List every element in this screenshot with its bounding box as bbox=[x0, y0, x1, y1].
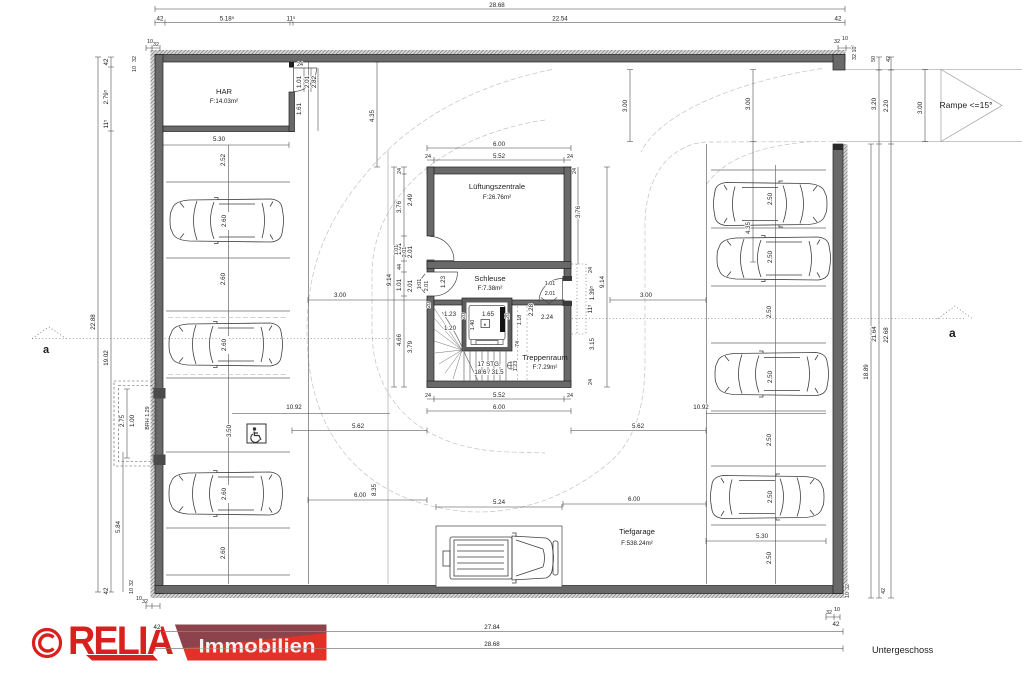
svg-text:11⁵: 11⁵ bbox=[287, 16, 296, 23]
svg-text:1.23: 1.23 bbox=[440, 275, 447, 288]
svg-text:1.65: 1.65 bbox=[482, 311, 495, 318]
svg-text:10: 10 bbox=[132, 66, 138, 72]
svg-text:28.68: 28.68 bbox=[489, 2, 505, 9]
svg-text:1.01: 1.01 bbox=[417, 279, 423, 290]
svg-text:2.01: 2.01 bbox=[407, 245, 414, 258]
svg-text:6.00: 6.00 bbox=[354, 492, 367, 499]
svg-text:Lüftungszentrale: Lüftungszentrale bbox=[469, 182, 525, 191]
svg-text:5.52: 5.52 bbox=[493, 153, 506, 160]
svg-text:11⁵: 11⁵ bbox=[103, 119, 110, 128]
svg-text:24: 24 bbox=[397, 168, 403, 174]
svg-text:10: 10 bbox=[842, 36, 848, 42]
svg-text:Immobilien: Immobilien bbox=[199, 636, 316, 658]
svg-text:22.54: 22.54 bbox=[552, 16, 568, 23]
svg-text:11⁵: 11⁵ bbox=[587, 304, 594, 313]
svg-text:6.00: 6.00 bbox=[493, 141, 506, 148]
svg-text:1.01: 1.01 bbox=[396, 278, 403, 291]
svg-text:HAR: HAR bbox=[216, 87, 233, 96]
svg-text:1.20: 1.20 bbox=[444, 325, 457, 332]
svg-text:2.20: 2.20 bbox=[883, 99, 890, 112]
svg-text:2.28: 2.28 bbox=[528, 303, 535, 316]
svg-text:32: 32 bbox=[845, 584, 851, 590]
svg-text:F:7.29m²: F:7.29m² bbox=[533, 364, 558, 371]
svg-text:10: 10 bbox=[834, 607, 840, 613]
svg-text:2.52: 2.52 bbox=[220, 153, 227, 166]
svg-text:18.89: 18.89 bbox=[863, 364, 870, 380]
svg-text:2.50: 2.50 bbox=[767, 490, 774, 503]
svg-text:3.76: 3.76 bbox=[575, 205, 582, 218]
svg-text:2.01: 2.01 bbox=[545, 291, 556, 297]
svg-text:24: 24 bbox=[572, 168, 578, 174]
svg-text:24: 24 bbox=[297, 62, 303, 68]
svg-text:BRH 1.29: BRH 1.29 bbox=[145, 406, 151, 429]
svg-text:42: 42 bbox=[154, 624, 161, 631]
svg-text:27.84: 27.84 bbox=[484, 624, 500, 631]
svg-text:1.61: 1.61 bbox=[296, 102, 303, 115]
svg-text:5.52: 5.52 bbox=[493, 392, 506, 399]
svg-text:Tiefgarage: Tiefgarage bbox=[619, 527, 655, 536]
svg-text:2.60: 2.60 bbox=[220, 272, 227, 285]
svg-text:2.01: 2.01 bbox=[407, 279, 414, 292]
svg-text:3.00: 3.00 bbox=[745, 97, 752, 110]
svg-text:2.01: 2.01 bbox=[402, 247, 408, 258]
svg-text:24: 24 bbox=[567, 154, 573, 160]
svg-text:8.35: 8.35 bbox=[371, 483, 378, 496]
svg-text:22.68: 22.68 bbox=[883, 327, 890, 343]
svg-text:24: 24 bbox=[425, 154, 431, 160]
svg-text:42: 42 bbox=[157, 16, 164, 23]
svg-text:3.00: 3.00 bbox=[640, 292, 653, 299]
svg-text:6.00: 6.00 bbox=[628, 496, 641, 503]
svg-text:42: 42 bbox=[881, 588, 887, 594]
svg-text:2.50: 2.50 bbox=[766, 551, 773, 564]
svg-text:32: 32 bbox=[142, 599, 148, 605]
svg-text:42: 42 bbox=[103, 58, 110, 65]
svg-text:1.40: 1.40 bbox=[470, 320, 476, 331]
svg-text:3.50: 3.50 bbox=[226, 424, 233, 437]
svg-text:a: a bbox=[43, 344, 50, 356]
svg-text:28.68: 28.68 bbox=[484, 641, 500, 648]
svg-text:2.60: 2.60 bbox=[221, 487, 228, 500]
svg-text:1.23: 1.23 bbox=[444, 311, 457, 318]
svg-text:32: 32 bbox=[826, 610, 832, 616]
svg-text:F:7.38m²: F:7.38m² bbox=[478, 285, 503, 292]
svg-text:2.60: 2.60 bbox=[220, 546, 227, 559]
svg-text:74: 74 bbox=[515, 341, 521, 347]
svg-text:1.01: 1.01 bbox=[545, 281, 556, 287]
svg-text:20: 20 bbox=[426, 302, 432, 308]
svg-text:▲: ▲ bbox=[483, 322, 487, 327]
svg-text:32: 32 bbox=[153, 42, 159, 48]
svg-text:2.60: 2.60 bbox=[221, 338, 228, 351]
svg-text:9.14: 9.14 bbox=[599, 275, 606, 288]
svg-text:Rampe <=15°: Rampe <=15° bbox=[939, 100, 992, 110]
svg-text:5.62: 5.62 bbox=[352, 423, 365, 430]
svg-text:Untergeschoss: Untergeschoss bbox=[872, 645, 934, 655]
svg-text:4.35: 4.35 bbox=[369, 109, 376, 122]
svg-text:4.66: 4.66 bbox=[396, 333, 403, 346]
svg-text:3.20: 3.20 bbox=[871, 97, 878, 110]
svg-text:F:26.76m²: F:26.76m² bbox=[483, 194, 511, 201]
svg-text:42: 42 bbox=[833, 621, 840, 628]
svg-text:5.24: 5.24 bbox=[493, 499, 506, 506]
svg-text:1.01: 1.01 bbox=[296, 75, 303, 88]
svg-text:32: 32 bbox=[132, 56, 138, 62]
svg-text:18.6 / 31.5: 18.6 / 31.5 bbox=[474, 369, 504, 376]
svg-text:1.18: 1.18 bbox=[517, 315, 523, 326]
svg-text:2.50: 2.50 bbox=[767, 250, 774, 263]
svg-text:10: 10 bbox=[129, 588, 135, 594]
svg-text:24: 24 bbox=[588, 267, 594, 273]
svg-text:44: 44 bbox=[397, 264, 403, 270]
svg-text:3.79: 3.79 bbox=[407, 340, 414, 353]
svg-text:19.02: 19.02 bbox=[103, 350, 110, 366]
svg-text:2.82: 2.82 bbox=[311, 75, 318, 88]
svg-text:2.60: 2.60 bbox=[221, 214, 228, 227]
svg-text:5.62: 5.62 bbox=[632, 423, 645, 430]
svg-text:2.75: 2.75 bbox=[119, 414, 126, 427]
svg-text:24: 24 bbox=[588, 379, 594, 385]
svg-text:2.24: 2.24 bbox=[541, 314, 554, 321]
svg-text:5.18⁵: 5.18⁵ bbox=[220, 16, 235, 23]
svg-text:17 STG.: 17 STG. bbox=[477, 361, 500, 368]
svg-text:42: 42 bbox=[835, 16, 842, 23]
svg-text:Schleuse: Schleuse bbox=[474, 274, 505, 283]
svg-text:3.00: 3.00 bbox=[622, 99, 629, 112]
svg-text:2.01: 2.01 bbox=[304, 75, 311, 88]
svg-text:21.64: 21.64 bbox=[871, 326, 878, 342]
svg-text:2.79⁵: 2.79⁵ bbox=[103, 89, 110, 104]
svg-text:32: 32 bbox=[129, 580, 135, 586]
svg-text:32 10: 32 10 bbox=[852, 47, 858, 61]
svg-text:Treppenraum: Treppenraum bbox=[522, 353, 567, 362]
svg-text:5.84: 5.84 bbox=[115, 520, 122, 533]
svg-text:10.92: 10.92 bbox=[693, 404, 709, 411]
svg-text:5.30: 5.30 bbox=[213, 136, 226, 143]
svg-text:2.50: 2.50 bbox=[767, 370, 774, 383]
svg-text:F:14.03m²: F:14.03m² bbox=[210, 98, 238, 105]
svg-text:a: a bbox=[949, 326, 956, 340]
svg-text:3.76: 3.76 bbox=[396, 200, 403, 213]
svg-text:6.00: 6.00 bbox=[493, 404, 506, 411]
svg-text:42: 42 bbox=[103, 587, 110, 594]
svg-text:3.15: 3.15 bbox=[589, 337, 596, 350]
svg-text:22.88: 22.88 bbox=[90, 314, 97, 330]
svg-text:2.50: 2.50 bbox=[766, 305, 773, 318]
svg-text:1.01: 1.01 bbox=[394, 245, 400, 256]
svg-text:3.00: 3.00 bbox=[334, 292, 347, 299]
svg-text:4.35: 4.35 bbox=[745, 221, 752, 234]
svg-text:24: 24 bbox=[567, 393, 573, 399]
svg-text:20: 20 bbox=[505, 313, 511, 319]
svg-text:1.00: 1.00 bbox=[129, 414, 136, 427]
svg-text:2.49: 2.49 bbox=[407, 193, 414, 206]
svg-text:5.30: 5.30 bbox=[756, 533, 769, 540]
svg-text:10.92: 10.92 bbox=[286, 404, 302, 411]
svg-text:2.50: 2.50 bbox=[766, 433, 773, 446]
svg-text:32: 32 bbox=[834, 39, 840, 45]
svg-text:9.14: 9.14 bbox=[386, 273, 393, 286]
svg-text:2.01: 2.01 bbox=[424, 281, 430, 292]
svg-text:20: 20 bbox=[461, 313, 467, 319]
svg-text:2.50: 2.50 bbox=[767, 192, 774, 205]
svg-text:3.00: 3.00 bbox=[917, 101, 924, 114]
svg-text:24: 24 bbox=[425, 393, 431, 399]
svg-text:1.39⁵: 1.39⁵ bbox=[589, 285, 596, 300]
svg-text:F:538.24m²: F:538.24m² bbox=[621, 540, 653, 547]
svg-text:1.23: 1.23 bbox=[513, 361, 519, 372]
svg-text:10: 10 bbox=[845, 592, 851, 598]
